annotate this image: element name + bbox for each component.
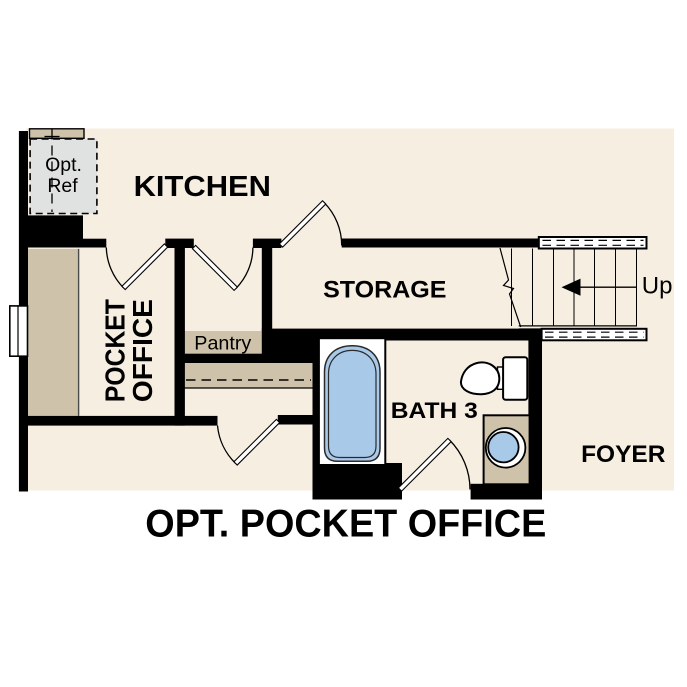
svg-text:Up: Up: [642, 273, 673, 300]
svg-text:STORAGE: STORAGE: [323, 276, 446, 303]
svg-text:FOYER: FOYER: [581, 441, 665, 468]
svg-text:Ref: Ref: [47, 175, 78, 197]
svg-text:Opt.: Opt.: [45, 154, 82, 176]
svg-text:OFFICE: OFFICE: [127, 299, 158, 402]
svg-text:Pantry: Pantry: [194, 333, 251, 355]
svg-text:BATH 3: BATH 3: [391, 398, 478, 423]
svg-text:OPT. POCKET OFFICE: OPT. POCKET OFFICE: [145, 503, 546, 546]
svg-text:POCKET: POCKET: [99, 299, 130, 402]
svg-text:KITCHEN: KITCHEN: [134, 171, 271, 203]
